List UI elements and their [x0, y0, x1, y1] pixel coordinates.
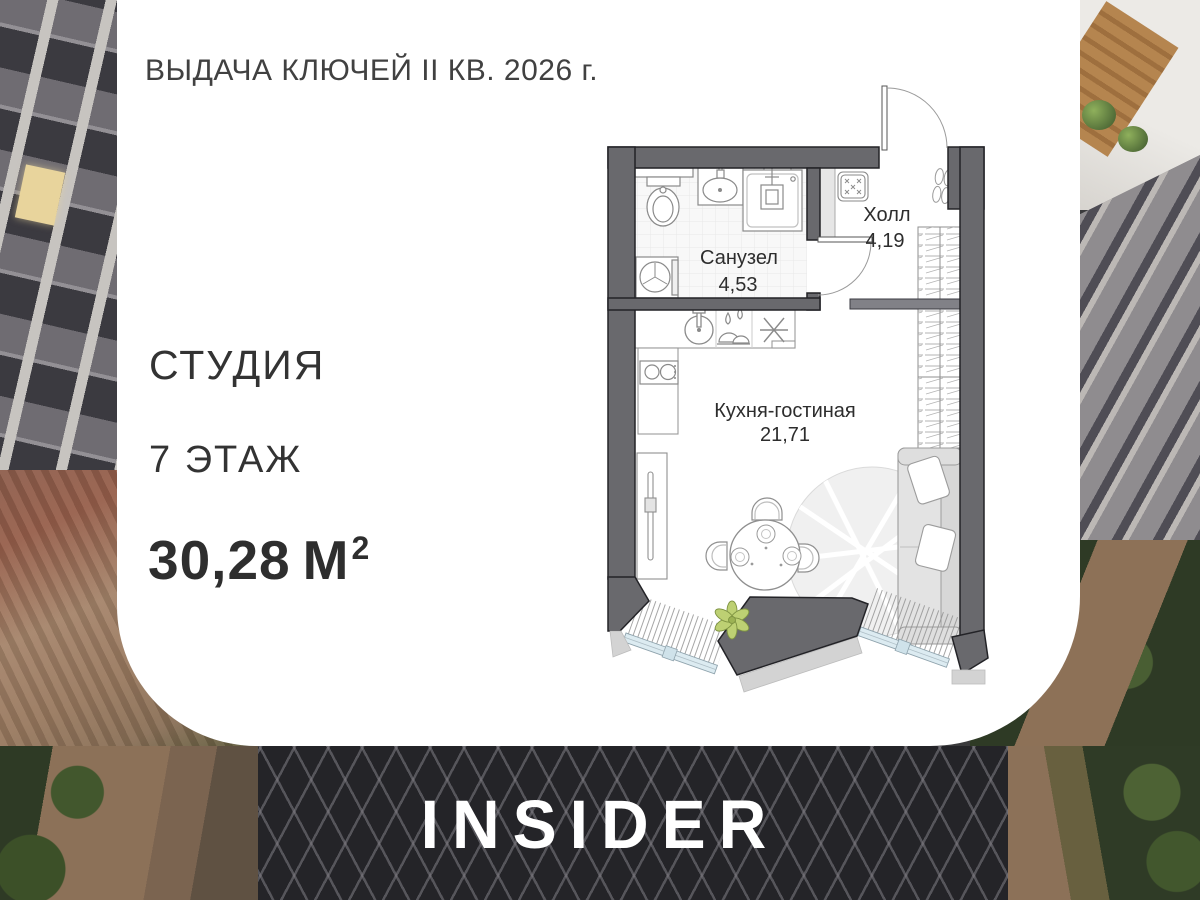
shower-icon	[743, 164, 802, 231]
background-right-building	[1078, 155, 1200, 585]
room-area-kitchen-living: 21,71	[760, 424, 810, 446]
entrance-door	[882, 86, 947, 150]
room-label-kitchen-living: Кухня-гостиная	[714, 400, 856, 422]
dining-table	[730, 520, 801, 590]
hall-partition-wall	[850, 299, 962, 309]
doormat-icon	[838, 172, 868, 201]
room-area-bathroom: 4,53	[719, 274, 758, 296]
lit-window	[15, 164, 65, 225]
wardrobe-hangers-icon	[918, 227, 962, 448]
room-label-bathroom: Санузел	[700, 247, 778, 269]
bathroom-sink-icon	[698, 164, 743, 205]
area-unit: М	[303, 529, 350, 591]
insider-logo: INSIDER	[0, 784, 1200, 863]
wall-right-cap	[952, 670, 985, 684]
area-value: 30,28	[148, 529, 291, 591]
terrace-bush	[1118, 126, 1148, 152]
terrace-bush	[1082, 100, 1116, 130]
promo-screenshot: ВЫДАЧА КЛЮЧЕЙ II КВ. 2026 г. СТУДИЯ 7 ЭТ…	[0, 0, 1200, 900]
bathroom-door	[818, 237, 872, 295]
apartment-area: 30,28М2	[148, 528, 370, 592]
area-superscript: 2	[351, 530, 370, 566]
tv-console	[637, 453, 667, 579]
apartment-type: СТУДИЯ	[149, 342, 325, 389]
keys-handover-date: ВЫДАЧА КЛЮЧЕЙ II КВ. 2026 г.	[145, 54, 598, 88]
washing-machine-icon	[636, 257, 678, 298]
duct	[820, 168, 835, 238]
stove-icon	[640, 361, 678, 384]
room-area-hall: 4,19	[866, 230, 905, 252]
apartment-floor: 7 ЭТАЖ	[149, 439, 302, 482]
room-label-hall: Холл	[863, 204, 910, 226]
floor-plan: Санузел 4,53 Холл 4,19 Кухня-гостиная 21…	[600, 80, 992, 702]
